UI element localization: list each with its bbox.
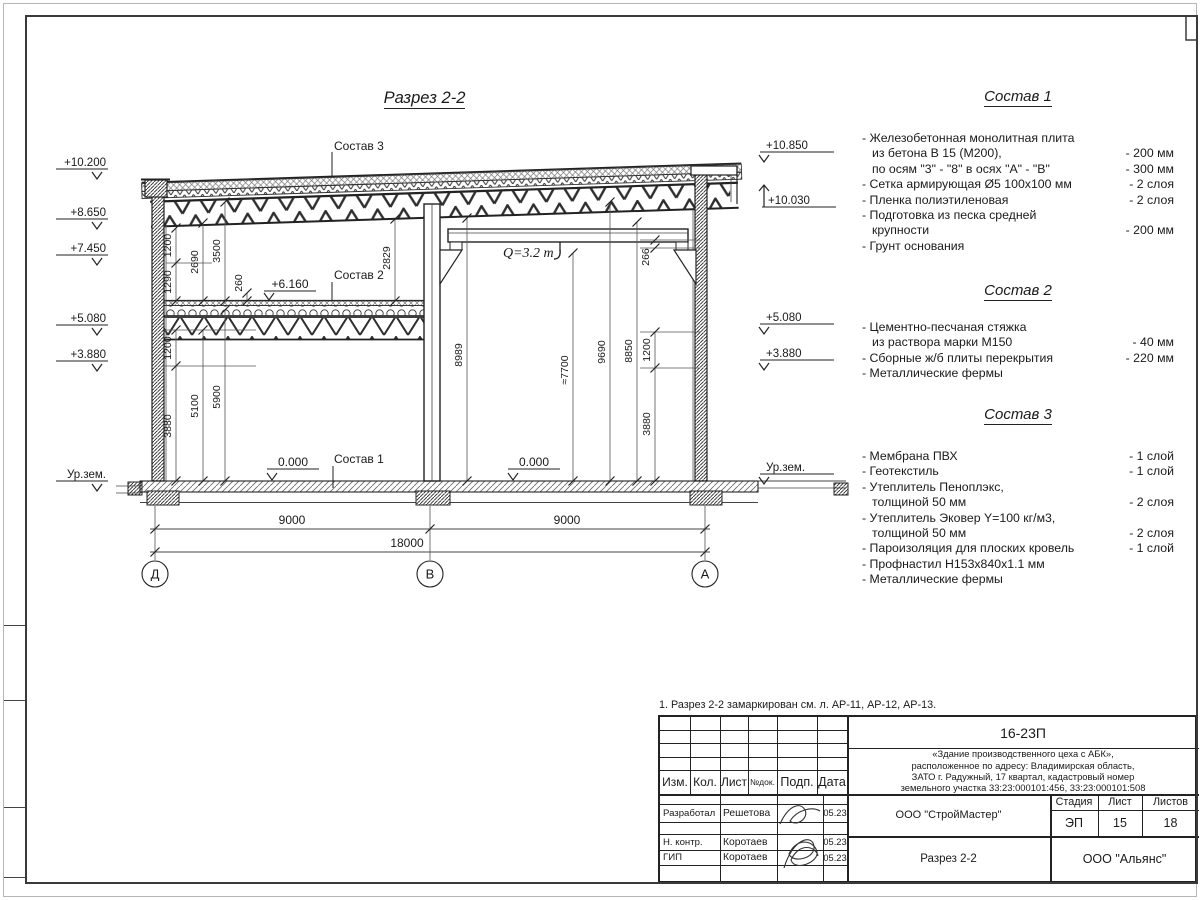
list-item: - Металлические фермы xyxy=(862,572,1174,587)
tb-org1: ООО "СтройМастер" xyxy=(847,794,1050,836)
list-item: - Сборные ж/б плиты перекрытия- 220 мм xyxy=(862,351,1174,366)
tb-object-line: «Здание производственного цеха с АБК», xyxy=(932,748,1114,759)
tb-col-ndok: №док. xyxy=(748,770,777,794)
tb-date-gip: 05.23 xyxy=(823,850,847,865)
list-item: крупности- 200 мм xyxy=(862,223,1174,238)
list-item: - Железобетонная монолитная плита xyxy=(862,131,1174,146)
list-item: - Металлические фермы xyxy=(862,366,1174,381)
tb-doc-number: 16-23П xyxy=(847,717,1199,748)
tb-object-line: расположенное по адресу: Владимирская об… xyxy=(911,760,1134,771)
list-item: - Утеплитель Эковер Y=100 кг/м3, xyxy=(862,511,1174,526)
tb-list-value: 15 xyxy=(1098,810,1142,836)
tb-object-line: ЗАТО г. Радужный, 17 квартал, кадастровы… xyxy=(912,771,1135,782)
list-item: толщиной 50 мм- 2 слоя xyxy=(862,526,1174,541)
composition-1: Состав 1 - Железобетонная монолитная пли… xyxy=(862,88,1174,254)
tb-sheet-title: Разрез 2-2 xyxy=(847,836,1050,881)
list-item: - Утеплитель Пеноплэкс, xyxy=(862,480,1174,495)
list-item: - Пароизоляция для плоских кровель- 1 сл… xyxy=(862,541,1174,556)
tb-name-gip: Коротаев xyxy=(720,850,780,865)
margin-strip-divider xyxy=(3,625,26,626)
list-item: из раствора марки М150- 40 мм xyxy=(862,335,1174,350)
composition-3-title: Состав 3 xyxy=(862,406,1174,423)
title-block: Изм. Кол. Лист №док. Подп. Дата Разработ… xyxy=(658,715,1197,883)
list-item: - Пленка полиэтиленовая- 2 слоя xyxy=(862,193,1174,208)
tb-col-list: Лист xyxy=(720,770,748,794)
tb-role-ncontr: Н. контр. xyxy=(660,834,723,850)
tb-col-kol: Кол. xyxy=(690,770,720,794)
drawing-title: Разрез 2-2 xyxy=(352,89,497,108)
tb-col-data: Дата xyxy=(817,770,847,794)
list-item: - Геотекстиль- 1 слой xyxy=(862,464,1174,479)
drawing-sheet: Разрез 2-2 Состав 1 - Железобетонная мон… xyxy=(0,0,1200,900)
tb-object-description: «Здание производственного цеха с АБК», р… xyxy=(847,748,1199,794)
tb-role-gip: ГИП xyxy=(660,850,723,865)
tb-line xyxy=(660,730,847,731)
tb-line xyxy=(660,757,847,758)
tb-role-developer: Разработал xyxy=(660,804,723,822)
tb-listov-value: 18 xyxy=(1142,810,1199,836)
tb-name-developer: Решетова xyxy=(720,804,780,822)
tb-line xyxy=(660,865,847,866)
list-item: - Профнастил Н153х840х1.1 мм xyxy=(862,557,1174,572)
tb-stage-header: Стадия xyxy=(1050,794,1098,810)
margin-strip-divider xyxy=(3,877,26,878)
tb-date-developer: 05.23 xyxy=(823,804,847,822)
tb-list-header: Лист xyxy=(1098,794,1142,810)
tb-date-ncontr: 05.23 xyxy=(823,834,847,850)
tb-name-ncontr: Коротаев xyxy=(720,834,780,850)
list-item: - Грунт основания xyxy=(862,239,1174,254)
list-item: по осям "3" - "8" в осях "А" - "В"- 300 … xyxy=(862,162,1174,177)
list-item: - Подготовка из песка средней xyxy=(862,208,1174,223)
composition-1-title: Состав 1 xyxy=(862,88,1174,105)
composition-2-title: Состав 2 xyxy=(862,282,1174,299)
list-item: из бетона В 15 (М200),- 200 мм xyxy=(862,146,1174,161)
composition-3: Состав 3 - Мембрана ПВХ- 1 слой - Геотек… xyxy=(862,406,1174,588)
tb-line xyxy=(660,743,847,744)
composition-2: Состав 2 - Цементно-песчаная стяжка из р… xyxy=(862,282,1174,382)
tb-object-line: земельного участка 33:23:000101:456, 33:… xyxy=(901,782,1146,793)
tb-col-izm: Изм. xyxy=(660,770,690,794)
tb-org2: ООО "Альянс" xyxy=(1050,836,1199,881)
tb-line xyxy=(660,822,847,823)
margin-strip-divider xyxy=(3,807,26,808)
tb-col-podp: Подп. xyxy=(777,770,817,794)
list-item: толщиной 50 мм- 2 слоя xyxy=(862,495,1174,510)
tb-stage-value: ЭП xyxy=(1050,810,1098,836)
list-item: - Цементно-песчаная стяжка xyxy=(862,320,1174,335)
list-item: - Мембрана ПВХ- 1 слой xyxy=(862,449,1174,464)
tb-listov-header: Листов xyxy=(1142,794,1199,810)
margin-strip-divider xyxy=(3,700,26,701)
list-item: - Сетка армирующая Ø5 100х100 мм- 2 слоя xyxy=(862,177,1174,192)
sheet-note: 1. Разрез 2-2 замаркирован см. л. АР-11,… xyxy=(659,699,936,711)
